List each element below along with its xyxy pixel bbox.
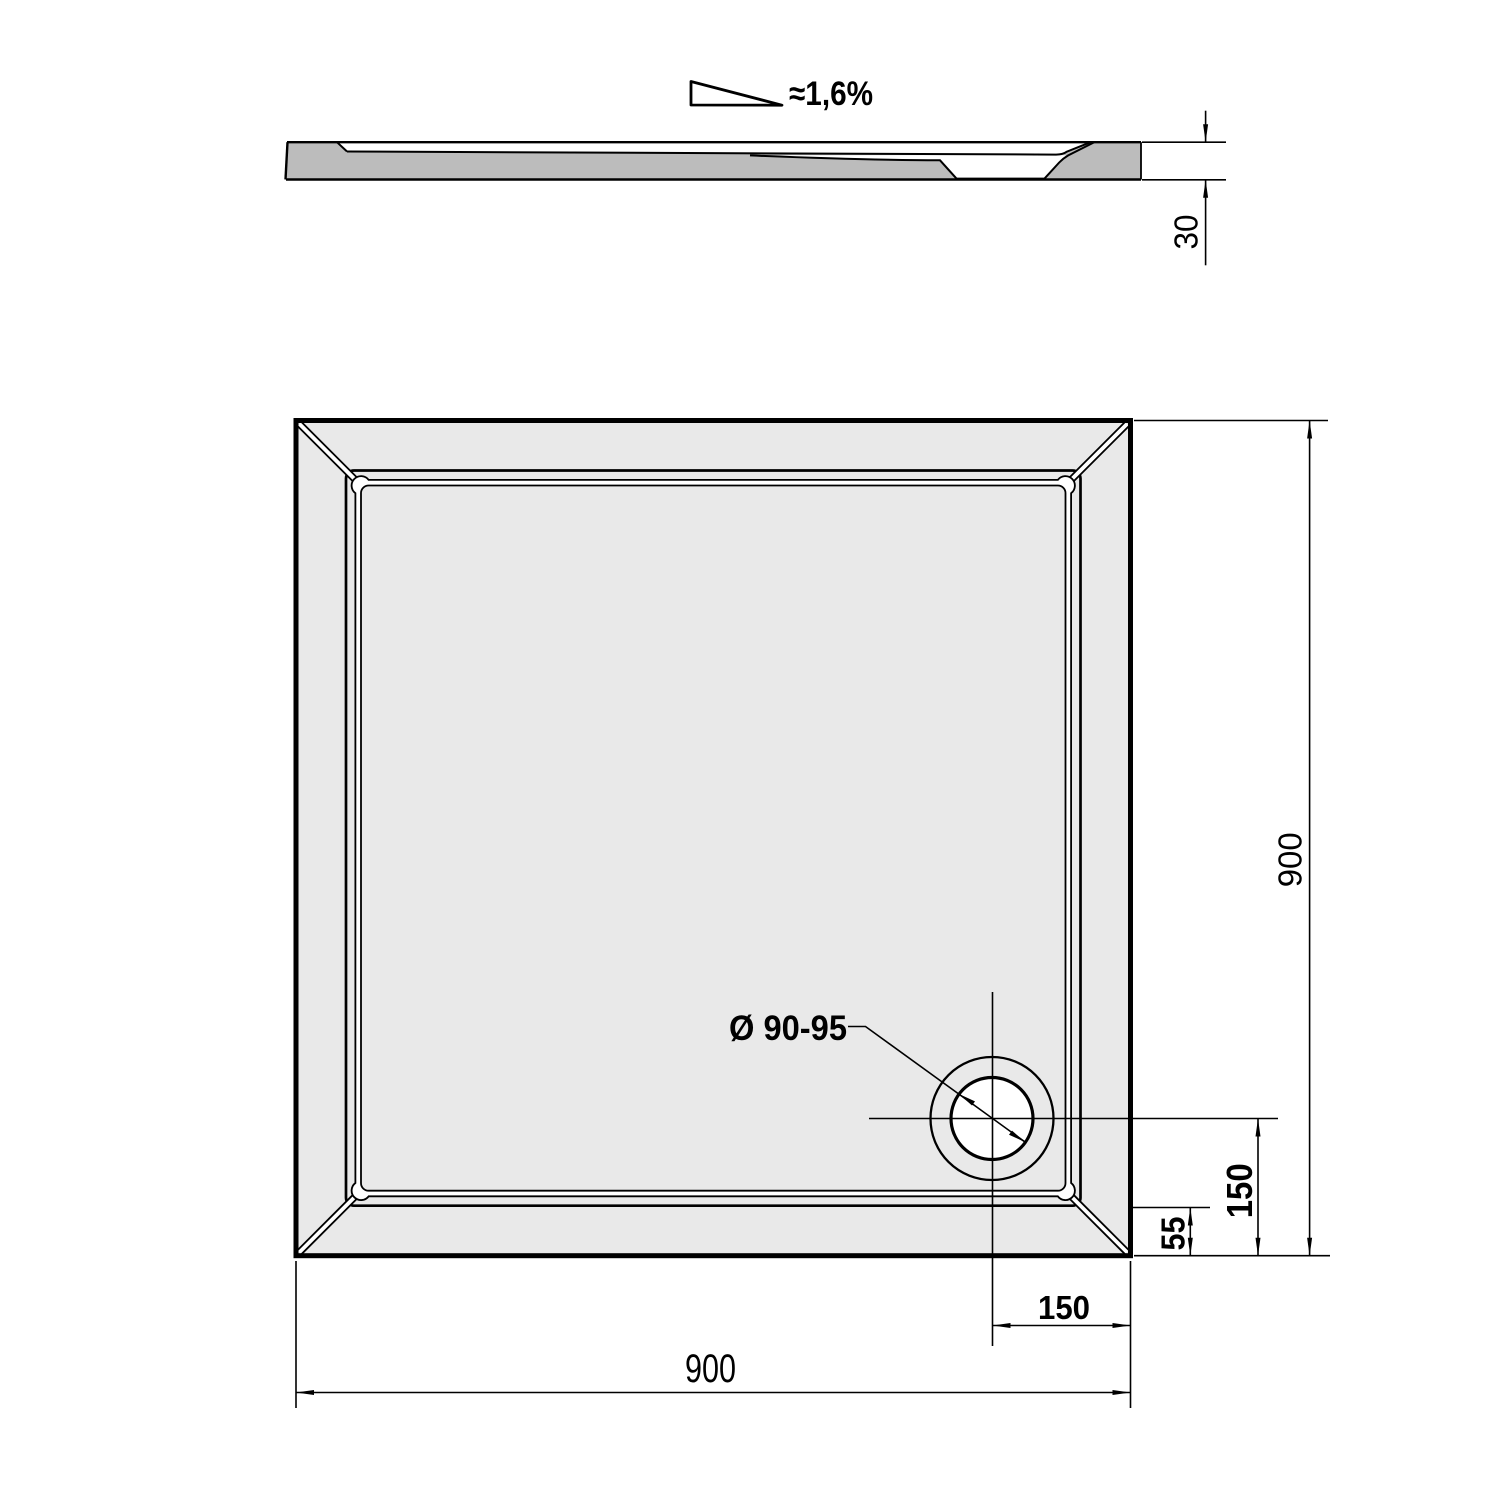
svg-text:900: 900 <box>1272 832 1309 887</box>
svg-text:≈1,6%: ≈1,6% <box>789 75 873 113</box>
svg-text:150: 150 <box>1219 1163 1260 1218</box>
svg-text:900: 900 <box>685 1347 736 1391</box>
svg-text:Ø 90-95: Ø 90-95 <box>729 1009 847 1048</box>
svg-text:30: 30 <box>1168 215 1205 250</box>
svg-text:150: 150 <box>1038 1290 1090 1327</box>
svg-text:55: 55 <box>1156 1217 1193 1251</box>
